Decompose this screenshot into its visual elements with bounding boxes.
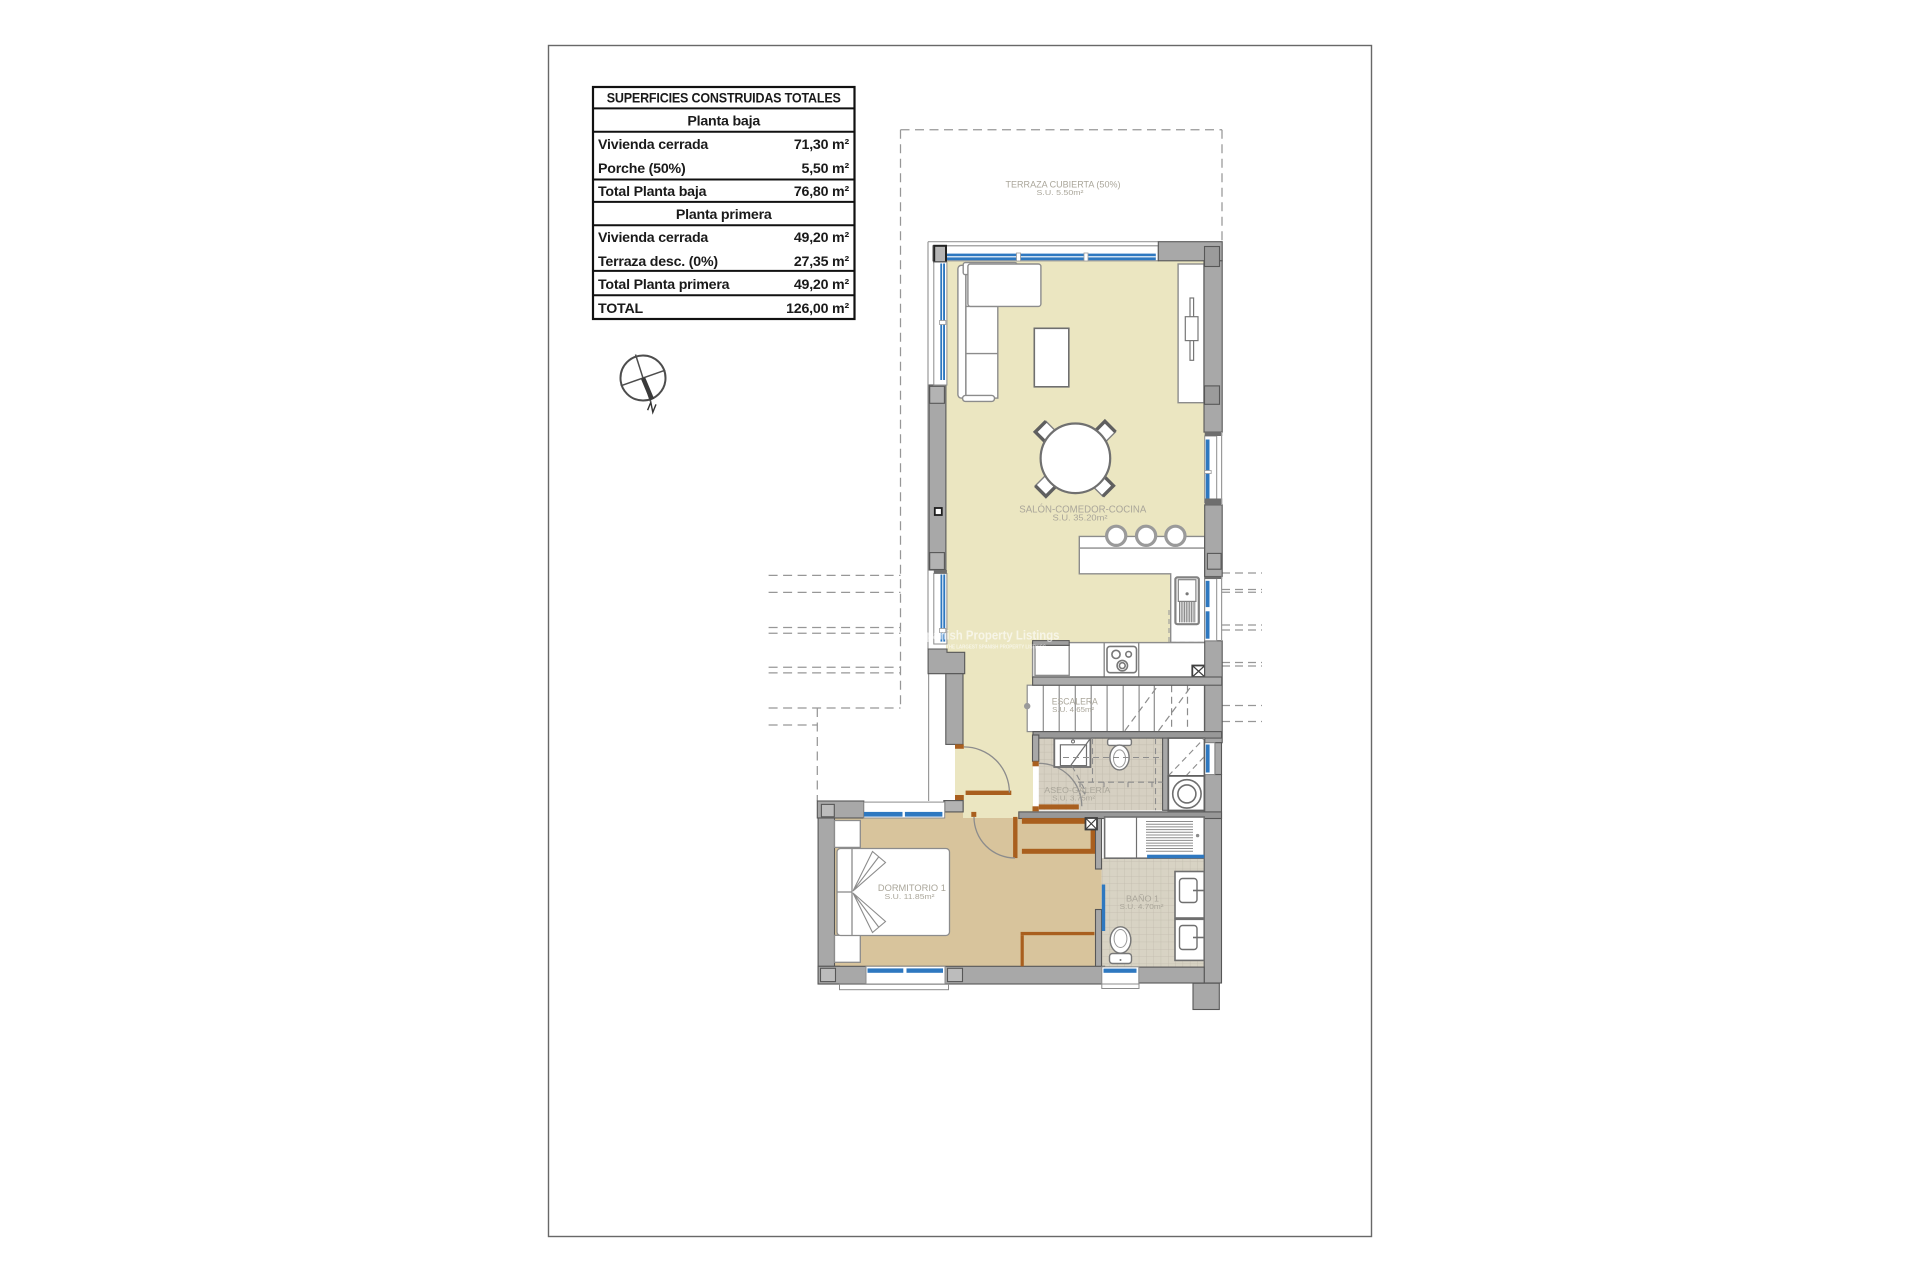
svg-text:SUPERFICIES CONSTRUIDAS TOTALE: SUPERFICIES CONSTRUIDAS TOTALES xyxy=(607,91,841,106)
svg-text:S.U. 35.20m²: S.U. 35.20m² xyxy=(1053,514,1108,523)
svg-text:BAÑO 1: BAÑO 1 xyxy=(1126,894,1159,904)
svg-text:ESCALERA: ESCALERA xyxy=(1052,697,1098,707)
svg-text:S.U. 3.75m²: S.U. 3.75m² xyxy=(1052,796,1096,803)
svg-text:Total Planta primera: Total Planta primera xyxy=(598,277,730,293)
svg-text:S.U. 5.50m²: S.U. 5.50m² xyxy=(1037,188,1085,197)
svg-text:Vivienda cerrada: Vivienda cerrada xyxy=(598,230,708,246)
svg-text:126,00 m²: 126,00 m² xyxy=(786,301,849,317)
svg-text:TOTAL: TOTAL xyxy=(598,301,644,317)
svg-text:Total Planta baja: Total Planta baja xyxy=(598,184,707,200)
svg-text:49,20 m²: 49,20 m² xyxy=(794,230,850,246)
svg-text:Planta primera: Planta primera xyxy=(676,207,772,223)
svg-text:S.U. 11.85m²: S.U. 11.85m² xyxy=(885,892,936,901)
svg-text:S.U. 4.65m²: S.U. 4.65m² xyxy=(1052,707,1095,714)
svg-text:ASEO-GALERÍA: ASEO-GALERÍA xyxy=(1044,785,1110,795)
svg-text:49,20 m²: 49,20 m² xyxy=(794,277,850,293)
svg-text:Vivienda cerrada: Vivienda cerrada xyxy=(598,137,708,153)
svg-text:THE LARGEST SPANISH PROPERTY L: THE LARGEST SPANISH PROPERTY LISTINGS xyxy=(946,645,1046,651)
svg-text:5,50 m²: 5,50 m² xyxy=(802,161,850,177)
svg-text:Porche (50%): Porche (50%) xyxy=(598,161,686,177)
svg-text:76,80 m²: 76,80 m² xyxy=(794,184,850,200)
svg-text:Spanish Property Listings: Spanish Property Listings xyxy=(919,629,1060,643)
svg-text:27,35 m²: 27,35 m² xyxy=(794,254,850,270)
svg-text:71,30 m²: 71,30 m² xyxy=(794,137,850,153)
svg-text:Terraza desc. (0%): Terraza desc. (0%) xyxy=(598,254,718,270)
svg-text:Planta baja: Planta baja xyxy=(687,114,760,130)
svg-text:S.U. 4.70m²: S.U. 4.70m² xyxy=(1120,904,1165,911)
